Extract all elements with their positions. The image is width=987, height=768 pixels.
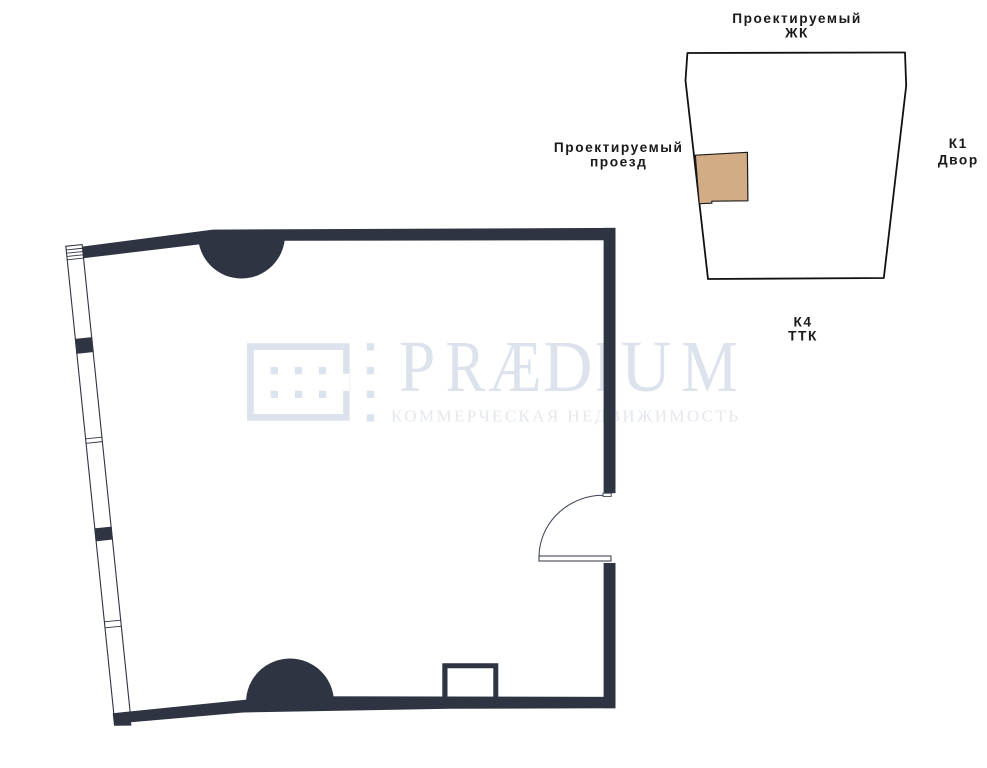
svg-text:ТТК: ТТК	[788, 328, 818, 343]
svg-text:КОММЕРЧЕСКАЯ НЕДВИЖИМОСТЬ: КОММЕРЧЕСКАЯ НЕДВИЖИМОСТЬ	[391, 407, 738, 426]
svg-text:P: P	[399, 326, 436, 407]
svg-text:К1: К1	[949, 136, 968, 151]
svg-text:Проектируемый: Проектируемый	[554, 140, 684, 155]
svg-text:Двор: Двор	[938, 153, 979, 168]
svg-text:R: R	[446, 326, 486, 407]
svg-text:U: U	[621, 326, 672, 407]
svg-text:К4: К4	[793, 314, 812, 329]
svg-text:M: M	[681, 326, 737, 407]
svg-text:проезд: проезд	[590, 154, 647, 169]
svg-text:Проектируемый: Проектируемый	[732, 11, 862, 26]
svg-text:D: D	[543, 326, 592, 407]
svg-text:ЖК: ЖК	[784, 26, 809, 41]
svg-text:Æ: Æ	[489, 326, 542, 407]
